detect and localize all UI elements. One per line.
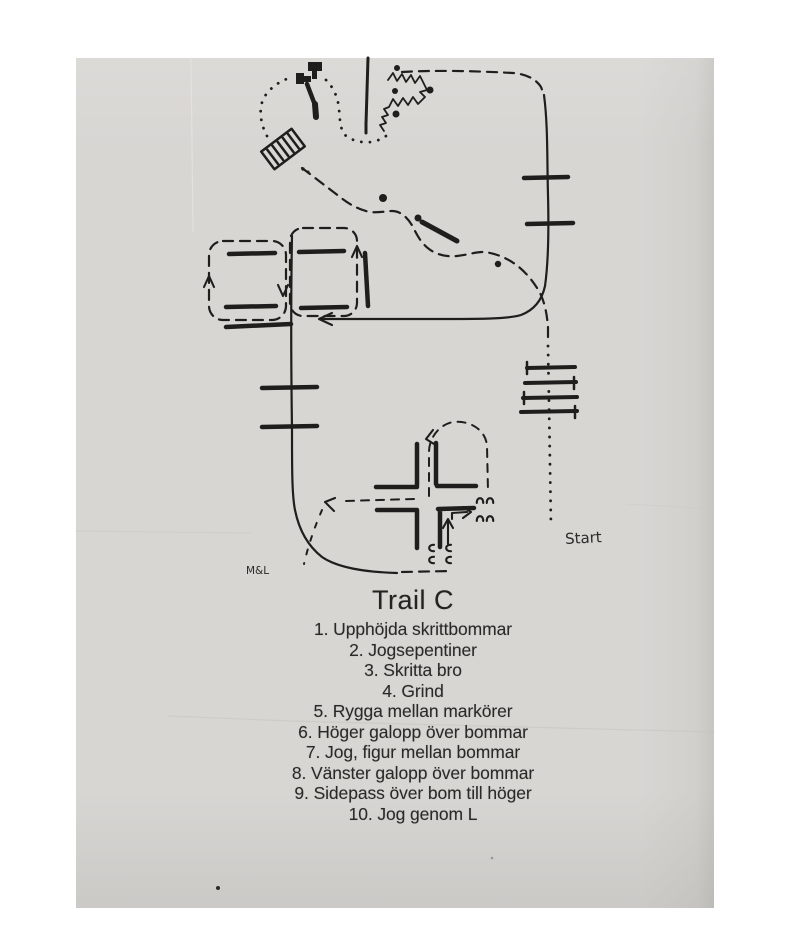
course-item: 8. Vänster galopp över bommar: [94, 763, 732, 784]
marker-dot: [495, 261, 501, 267]
jog-path-bottom: [402, 571, 452, 572]
course-item: 7. Jog, figur mellan bommar: [94, 742, 732, 763]
marker-dot: [394, 65, 400, 71]
dust-speck: [491, 857, 494, 860]
course-item: 2. Jogsepentiner: [94, 640, 732, 661]
figure-pole-right-bottom: [301, 307, 347, 308]
course-item: 10. Jog genom L: [94, 804, 732, 825]
figure-pole-outer-bottom: [226, 324, 291, 327]
marker-dot: [415, 215, 422, 222]
start-label: Start: [565, 528, 603, 548]
figure-pole-left-bottom: [226, 306, 276, 307]
page: Start M&L Trail C 1. Upphöjda skrittbomm…: [0, 0, 800, 931]
course-item: 9. Sidepass över bom till höger: [94, 783, 732, 804]
left-lope-pole-1: [262, 387, 317, 388]
path-dot: [301, 167, 304, 170]
gate-bottom-post: [315, 104, 316, 117]
course-item: 5. Rygga mellan markörer: [94, 701, 732, 722]
course-text-block: Trail C 1. Upphöjda skrittbommar 2. Jogs…: [94, 585, 732, 824]
course-item: 4. Grind: [94, 681, 732, 702]
marker-dot: [427, 87, 434, 94]
marker-dot: [393, 111, 400, 118]
right-lope-pole-2: [527, 223, 573, 224]
marker-dot: [392, 88, 398, 94]
ink-speck: [216, 886, 220, 890]
left-lope-pole-2: [262, 426, 317, 427]
marker-dot: [379, 194, 387, 202]
figure-pole-right-vertical: [365, 253, 368, 306]
path-dot: [307, 171, 310, 174]
course-item: 3. Skritta bro: [94, 660, 732, 681]
course-item: 1. Upphöjda skrittbommar: [94, 619, 732, 640]
course-list: 1. Upphöjda skrittbommar 2. Jogsepentine…: [94, 619, 732, 824]
course-item: 6. Höger galopp över bommar: [94, 722, 732, 743]
right-lope-pole-1: [524, 177, 568, 178]
walk-pole-2: [525, 382, 576, 383]
initials-label: M&L: [246, 565, 269, 577]
walk-pole-3: [523, 397, 577, 398]
gate-latch: [302, 76, 311, 82]
course-title: Trail C: [94, 585, 732, 615]
figure-pole-right-top: [299, 251, 344, 252]
figure-pole-left-top: [229, 253, 275, 254]
walk-pole-4: [521, 411, 577, 412]
walk-pole-1: [527, 367, 575, 368]
